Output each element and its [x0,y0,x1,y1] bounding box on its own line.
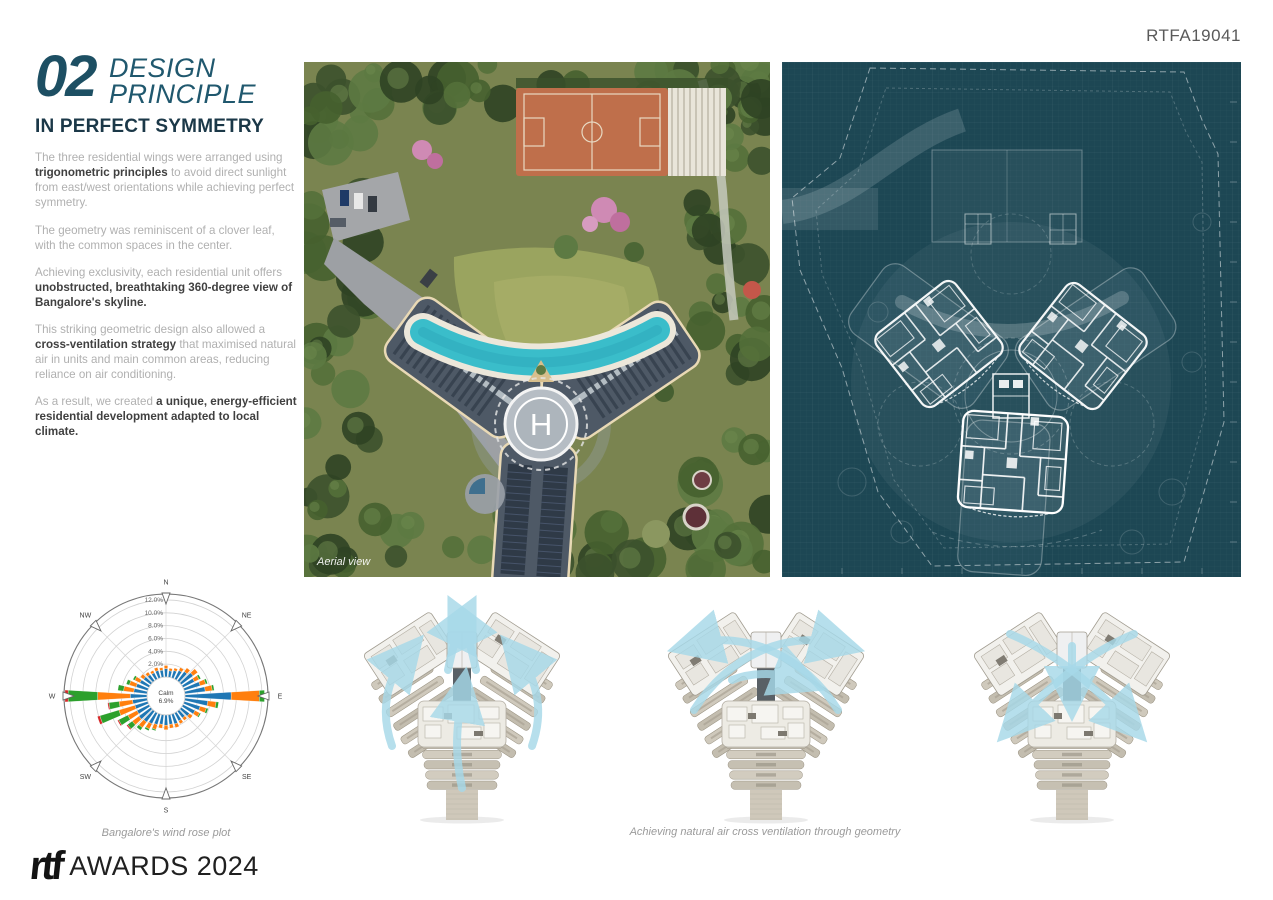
presentation-board: RTFA19041 02 DESIGN PRINCIPLE IN PERFECT… [0,0,1273,900]
svg-text:6.9%: 6.9% [159,698,174,705]
helipad: H [495,378,587,470]
section-number: 02 [35,52,96,101]
ventilation-diagram-2 [666,584,866,824]
windrose-bar [118,685,125,691]
section-heading: 02 DESIGN PRINCIPLE [35,52,297,107]
sports-court [516,78,728,176]
section-title: DESIGN PRINCIPLE [109,56,256,107]
svg-text:12.0%: 12.0% [145,597,164,604]
windrose-bar [169,668,173,671]
windrose-caption: Bangalore's wind rose plot [35,827,297,839]
svg-text:NE: NE [242,613,252,620]
svg-text:8.0%: 8.0% [148,623,163,630]
rtf-logo: rtf [28,846,62,886]
entry-code: RTFA19041 [1146,26,1241,46]
aerial-view-image: H [304,62,770,577]
compass-arrow-icon [162,593,170,604]
svg-text:2.0%: 2.0% [148,661,163,668]
windrose-bar [124,686,135,692]
windrose-bar [169,724,173,728]
windrose-bar [130,694,147,698]
windrose-bar [109,701,120,709]
windrose-bar [185,692,231,700]
paragraph: The three residential wings were arrange… [35,150,297,210]
ventilation-diagram-1 [362,584,562,824]
ventilation-caption: Achieving natural air cross ventilation … [545,826,985,838]
section-title-line2: PRINCIPLE [109,82,256,108]
awards-title: AWARDS 2024 [69,851,259,882]
svg-text:W: W [49,693,56,700]
svg-text:NW: NW [80,613,92,620]
footer: rtf AWARDS 2024 [30,846,259,886]
tower-render-crossflow [666,584,866,824]
windrose-bar [100,710,121,723]
windrose-bar [160,670,164,677]
compass-arrow-icon [90,761,101,772]
compass-arrow-icon [231,761,242,772]
svg-text:4.0%: 4.0% [148,648,163,655]
svg-text:SW: SW [80,774,92,781]
compass-arrow-icon [90,620,101,631]
svg-text:Calm: Calm [158,690,173,697]
svg-text:S: S [164,807,169,814]
section-subtitle: IN PERFECT SYMMETRY [35,116,297,138]
paragraphs: The three residential wings were arrange… [35,150,297,439]
ventilation-diagram-3 [972,584,1172,824]
windrose-bar [168,671,172,678]
paragraph: Achieving exclusivity, each residential … [35,265,297,310]
blueprint-image [782,62,1241,577]
windrose-bar [164,725,168,730]
windrose-bar [98,692,131,700]
paragraph: This striking geometric design also allo… [35,322,297,382]
helipad-letter: H [530,407,552,442]
svg-text:SE: SE [242,774,252,781]
windrose-plot: 2.0%4.0%6.0%8.0%10.0%12.0%NNEESESSWWNWCa… [30,578,300,830]
windrose-bar [164,715,167,725]
section-title-line1: DESIGN [109,56,256,82]
windrose-bar [164,665,168,668]
svg-text:10.0%: 10.0% [145,610,164,617]
windrose-bar [231,690,259,701]
tower-render-updraft [362,584,562,824]
text-column: 02 DESIGN PRINCIPLE IN PERFECT SYMMETRY … [35,52,297,439]
compass-arrow-icon [162,788,170,799]
paragraph: The geometry was reminiscent of a clover… [35,223,297,253]
windrose-bar [164,669,167,677]
blueprint-panel [782,62,1241,577]
compass-arrow-icon [231,620,242,631]
windrose-bar [204,685,212,691]
aerial-caption: Aerial view [317,556,370,568]
svg-text:6.0%: 6.0% [148,635,163,642]
windrose-bar [119,700,133,707]
windrose-bar [207,701,216,708]
aerial-view-panel: H Aerial view [304,62,770,577]
windrose-chart: 2.0%4.0%6.0%8.0%10.0%12.0%NNEESESSWWNWCa… [30,578,300,830]
windrose-bar [158,724,162,728]
svg-text:E: E [278,693,283,700]
svg-text:N: N [163,579,168,586]
paragraph: As a result, we created a unique, energy… [35,394,297,439]
tower-render-converging [972,584,1172,824]
